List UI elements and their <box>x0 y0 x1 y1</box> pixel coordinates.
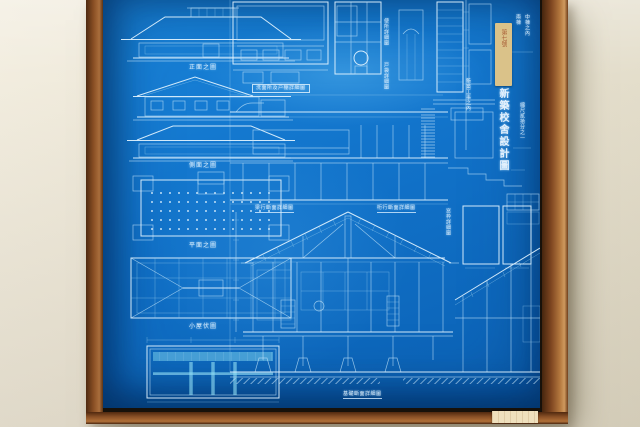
frame-left-rail <box>86 0 103 424</box>
right-section-band <box>448 52 539 224</box>
frame-corner-label <box>492 411 538 423</box>
roof-plan-label: 小屋伏圖 <box>189 324 217 330</box>
blueprint-drawing <box>103 0 540 408</box>
fixture-detail-panel <box>335 2 381 74</box>
detail-caption-box: 洗面所及戸棚詳細圖 <box>252 84 310 93</box>
front-elevation-drawing <box>121 8 301 61</box>
right-panel-caption: 窓枠詳細圖 <box>445 208 450 236</box>
section-caption-left: 梁行斷面詳細圖 <box>255 206 294 213</box>
title-scale-note: 縮尺貳拾分之一 <box>519 102 524 141</box>
catalog-sticker-text: 第七號 <box>500 29 506 47</box>
plan-label: 平面之圖 <box>189 243 217 249</box>
adjacent-roof-section-drawing <box>455 248 540 372</box>
blueprint-title: 新築校舍設計圖 <box>497 88 507 172</box>
arched-door-detail-panel <box>399 10 423 80</box>
vertical-note-1: 便所詳細圖 <box>383 18 388 46</box>
stair-section-detail <box>433 0 495 150</box>
photo-scene: 正面之圖 側面之圖 平面之圖 小屋伏圖 洗面所及戸棚詳細圖 梁行斷面詳細圖 桁行… <box>0 0 640 427</box>
title-note-right-2: 中棟之內 <box>524 14 529 36</box>
title-note-left: 新築工事之內 <box>465 78 470 111</box>
bottom-caption: 基礎斷面詳細圖 <box>343 392 382 399</box>
ground-floor-plan-drawing <box>147 337 279 402</box>
front-elevation-label: 正面之圖 <box>189 65 217 71</box>
roof-framing-plan-drawing <box>131 258 291 318</box>
section-caption-right: 桁行斷面詳細圖 <box>377 206 416 213</box>
side-elevation-label: 側面之圖 <box>189 163 217 169</box>
vertical-note-2: 戸袋詳細圖 <box>383 62 388 90</box>
catalog-sticker: 第七號 <box>495 23 512 86</box>
window-frame-detail-panels <box>463 206 531 268</box>
blueprint-sheet: 正面之圖 側面之圖 平面之圖 小屋伏圖 洗面所及戸棚詳細圖 梁行斷面詳細圖 桁行… <box>103 0 540 408</box>
frame-right-rail <box>542 0 568 424</box>
rear-elevation-drawing <box>127 126 295 161</box>
title-note-right-1: 兩棟 <box>515 14 520 25</box>
window-wall-detail-panel <box>233 2 328 83</box>
